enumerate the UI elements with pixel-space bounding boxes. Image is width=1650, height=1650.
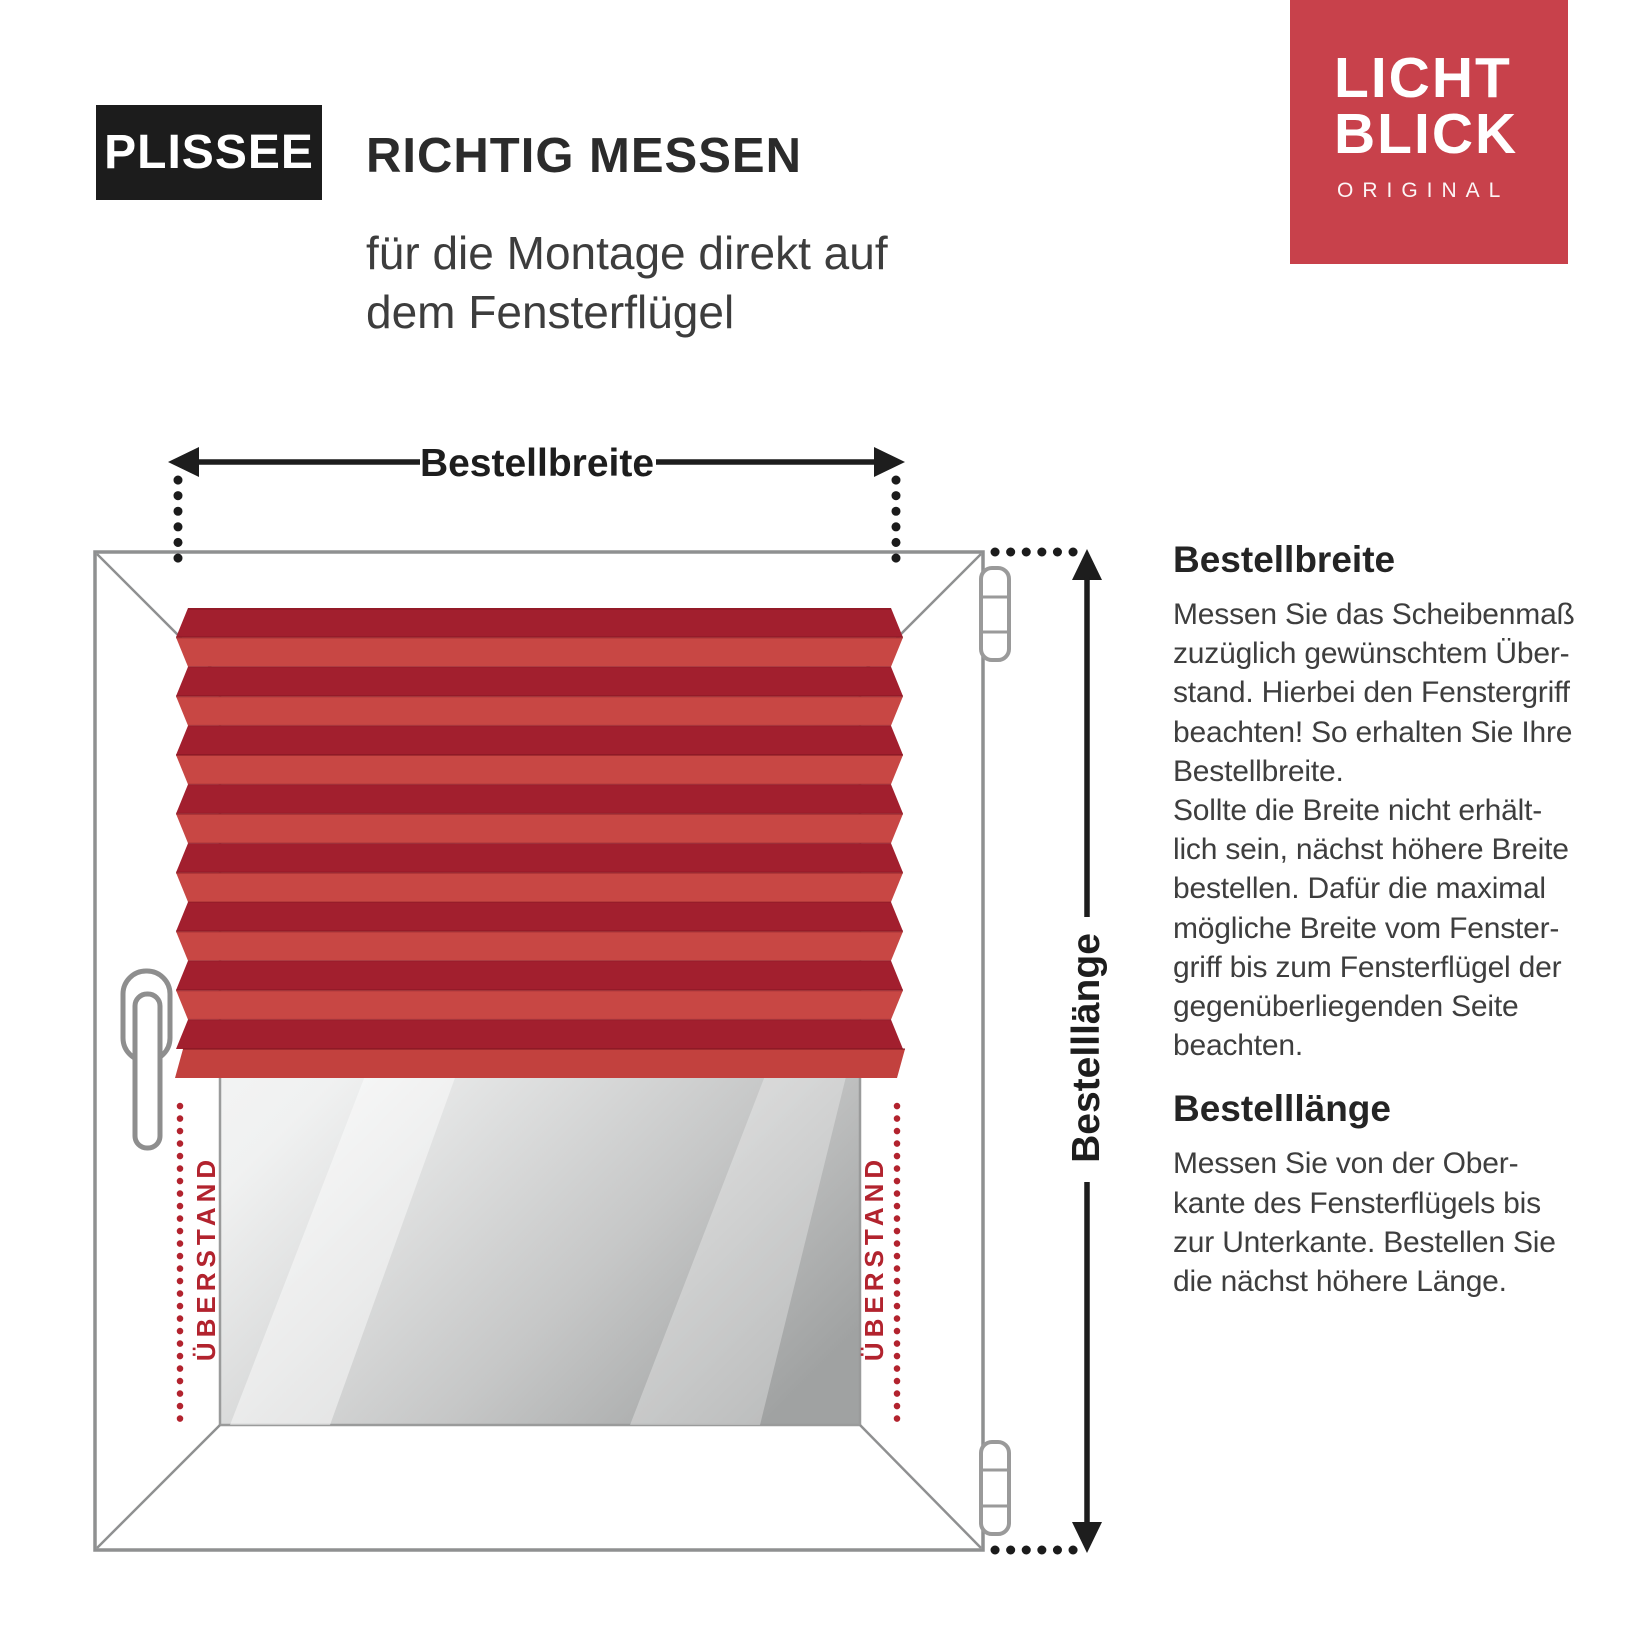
length-arrow-label: Bestelllänge <box>1065 933 1108 1163</box>
body-line: Messen Sie von der Ober- <box>1173 1144 1643 1183</box>
body-line: Sollte die Breite nicht erhält- <box>1173 791 1643 830</box>
overhang-label-left: ÜBERSTAND <box>191 1155 221 1361</box>
pleat-dark <box>176 608 903 637</box>
section-heading-bestelllaenge: Bestelllänge <box>1173 1090 1643 1127</box>
handle-grip <box>135 994 160 1148</box>
pleat-dark <box>176 667 903 696</box>
body-line: beachten! So erhalten Sie Ihre <box>1173 713 1643 752</box>
blind-bottom-rail <box>175 1049 905 1078</box>
instructions-column: Bestellbreite Messen Sie das Scheibenmaß… <box>1173 541 1643 1301</box>
pleat-light <box>176 814 903 843</box>
pleat-dark <box>176 961 903 990</box>
overhang-label-right: ÜBERSTAND <box>859 1155 889 1361</box>
width-measure-arrow: Bestellbreite <box>168 442 905 485</box>
pleated-blind <box>175 608 905 1078</box>
arrow-head-left <box>168 447 199 477</box>
body-line: bestellen. Dafür die maximal <box>1173 869 1643 908</box>
hinge-bottom <box>981 1442 1009 1534</box>
pleat-dark <box>176 1020 903 1049</box>
width-arrow-label: Bestellbreite <box>420 442 654 485</box>
body-line: die nächst höhere Länge. <box>1173 1262 1643 1301</box>
pleat-dark <box>176 784 903 813</box>
length-measure-arrow: Bestelllänge <box>1065 549 1108 1553</box>
arrow-head-right <box>874 447 905 477</box>
pleat-light <box>176 990 903 1019</box>
hinge-top <box>981 568 1009 660</box>
section-heading-bestellbreite: Bestellbreite <box>1173 541 1643 578</box>
body-line: Bestellbreite. <box>1173 752 1643 791</box>
body-line: kante des Fensterflügels bis <box>1173 1184 1643 1223</box>
body-line: beachten. <box>1173 1026 1643 1065</box>
body-line: gegenüberliegenden Seite <box>1173 987 1643 1026</box>
pleat-light <box>176 931 903 960</box>
body-line: lich sein, nächst höhere Breite <box>1173 830 1643 869</box>
pleat-dark <box>176 902 903 931</box>
body-line: zuzüglich gewünschtem Über- <box>1173 634 1643 673</box>
body-line: mögliche Breite vom Fenster- <box>1173 909 1643 948</box>
pleat-dark <box>176 843 903 872</box>
body-line: Messen Sie das Scheibenmaß <box>1173 595 1643 634</box>
body-line: griff bis zum Fensterflügel der <box>1173 948 1643 987</box>
pleat-dark <box>176 726 903 755</box>
body-line: stand. Hierbei den Fenstergriff <box>1173 673 1643 712</box>
pleat-light <box>176 873 903 902</box>
body-line: zur Unterkante. Bestellen Sie <box>1173 1223 1643 1262</box>
pleat-light <box>176 696 903 725</box>
pleat-light <box>176 755 903 784</box>
pleat-light <box>176 637 903 666</box>
